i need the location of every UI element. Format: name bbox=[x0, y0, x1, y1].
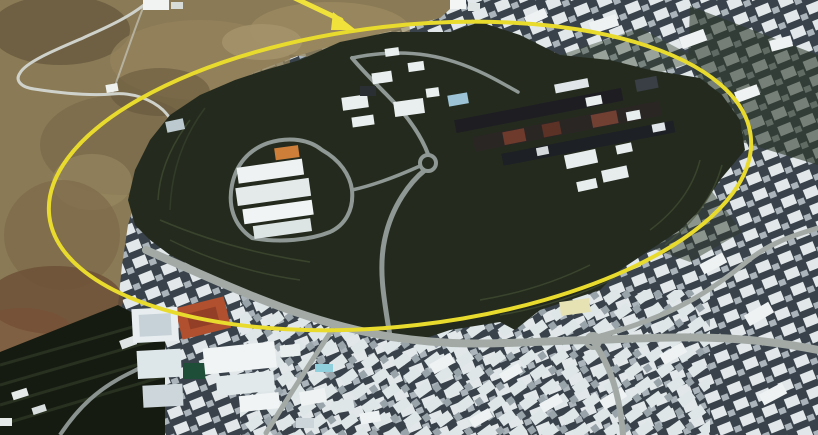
swimming-pool bbox=[315, 364, 333, 372]
hilltop-building-small bbox=[171, 2, 183, 9]
greenhouse-inner bbox=[139, 313, 172, 337]
greenhouse bbox=[137, 349, 182, 379]
building bbox=[296, 418, 314, 428]
building bbox=[0, 418, 12, 426]
building bbox=[468, 3, 480, 11]
greenhouse bbox=[142, 384, 183, 408]
roundabout bbox=[420, 155, 436, 171]
facility-building bbox=[280, 344, 301, 358]
satellite-scene bbox=[0, 0, 818, 435]
hilltop-building bbox=[143, 0, 169, 10]
satellite-image bbox=[0, 0, 818, 435]
dark-roof-building bbox=[360, 86, 376, 96]
green-sports-field bbox=[183, 363, 205, 379]
building bbox=[426, 87, 440, 98]
building bbox=[450, 0, 466, 9]
